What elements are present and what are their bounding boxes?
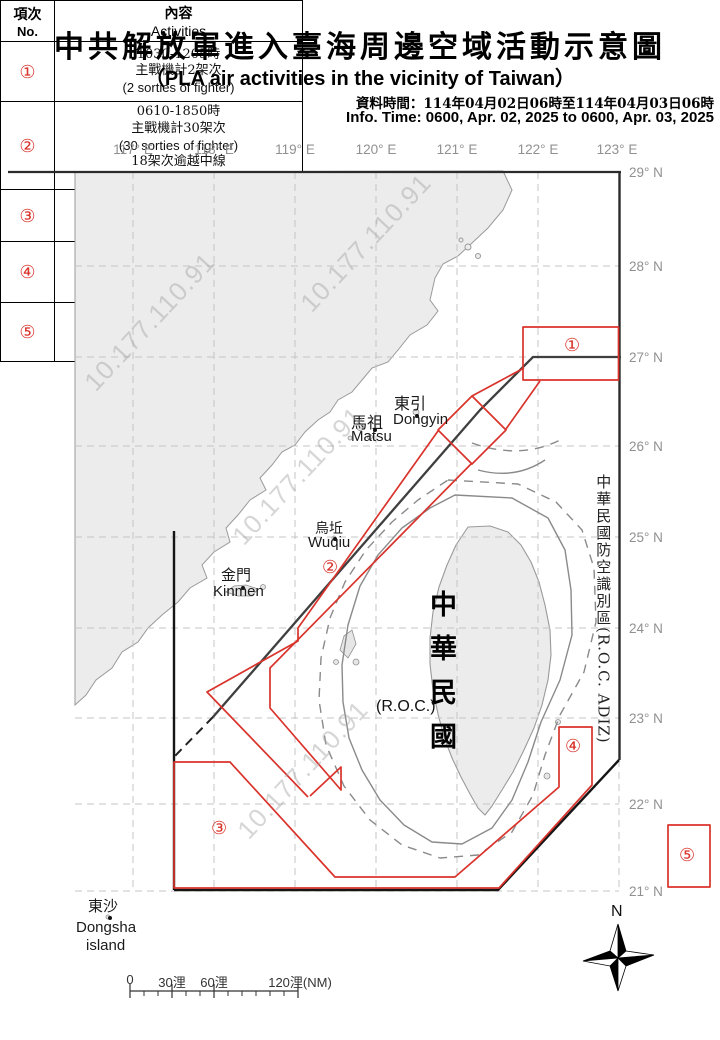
place-dongsha-en2: island — [86, 937, 125, 954]
zone-marker-1: ① — [564, 336, 580, 354]
zone-marker-2: ② — [322, 558, 338, 576]
place-matsu-en: Matsu — [351, 428, 392, 445]
roc-char-1: 中 — [430, 592, 457, 619]
place-dongsha-cjk: 東沙 — [88, 895, 118, 916]
roc-char-2: 華 — [430, 636, 457, 663]
zone-marker-3: ③ — [211, 819, 227, 837]
map-canvas — [0, 0, 720, 1040]
pla-activity-map-page: 中共解放軍進入臺海周邊空域活動示意圖 （PLA air activities i… — [0, 0, 720, 1040]
place-dongsha-en: Dongsha — [76, 919, 136, 936]
compass-icon — [583, 924, 654, 991]
roc-char-4: 國 — [430, 724, 457, 751]
place-wuqiu-en: Wuqiu — [308, 534, 350, 551]
roc-label: 中 華 民 國 — [430, 592, 457, 751]
place-kinmen-cjk: 金門 — [221, 564, 251, 585]
scale-bar — [130, 984, 298, 998]
place-dongyin-en: Dongyin — [393, 411, 448, 428]
roc-label-en: (R.O.C.) — [376, 698, 436, 716]
zone-3-4-polygon — [174, 727, 592, 888]
zone-marker-4: ④ — [565, 737, 581, 755]
place-kinmen-en: Kinmen — [213, 583, 264, 600]
zone-marker-5: ⑤ — [679, 846, 695, 864]
